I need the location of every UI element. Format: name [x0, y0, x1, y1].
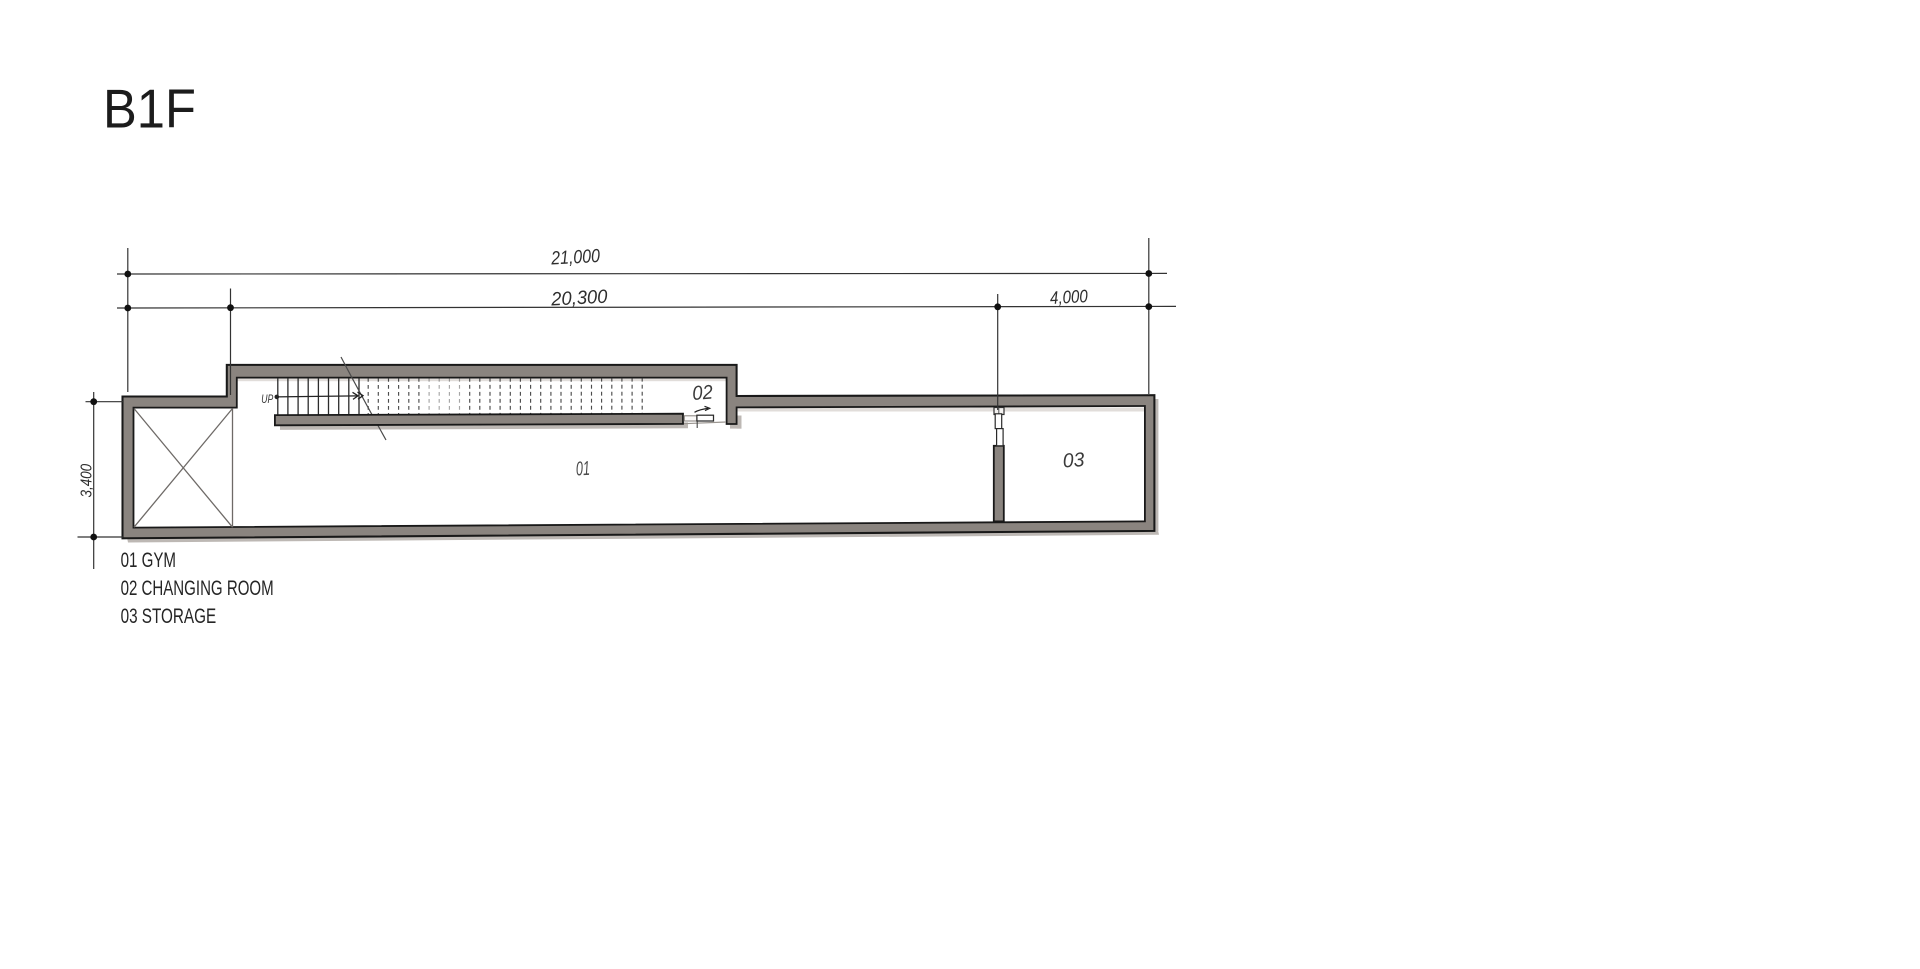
svg-text:02: 02	[692, 382, 714, 405]
svg-text:UP: UP	[261, 394, 273, 407]
svg-text:B1F: B1F	[103, 78, 196, 139]
svg-text:3,400: 3,400	[79, 463, 96, 497]
svg-text:01: 01	[575, 457, 590, 480]
svg-text:20,300: 20,300	[550, 285, 609, 309]
svg-text:03: 03	[1062, 449, 1085, 473]
svg-text:4,000: 4,000	[1049, 286, 1089, 309]
svg-text:03 STORAGE: 03 STORAGE	[121, 603, 217, 627]
svg-text:01 GYM: 01 GYM	[121, 547, 176, 571]
svg-text:02 CHANGING ROOM: 02 CHANGING ROOM	[121, 575, 274, 599]
svg-text:21,000: 21,000	[550, 245, 601, 269]
